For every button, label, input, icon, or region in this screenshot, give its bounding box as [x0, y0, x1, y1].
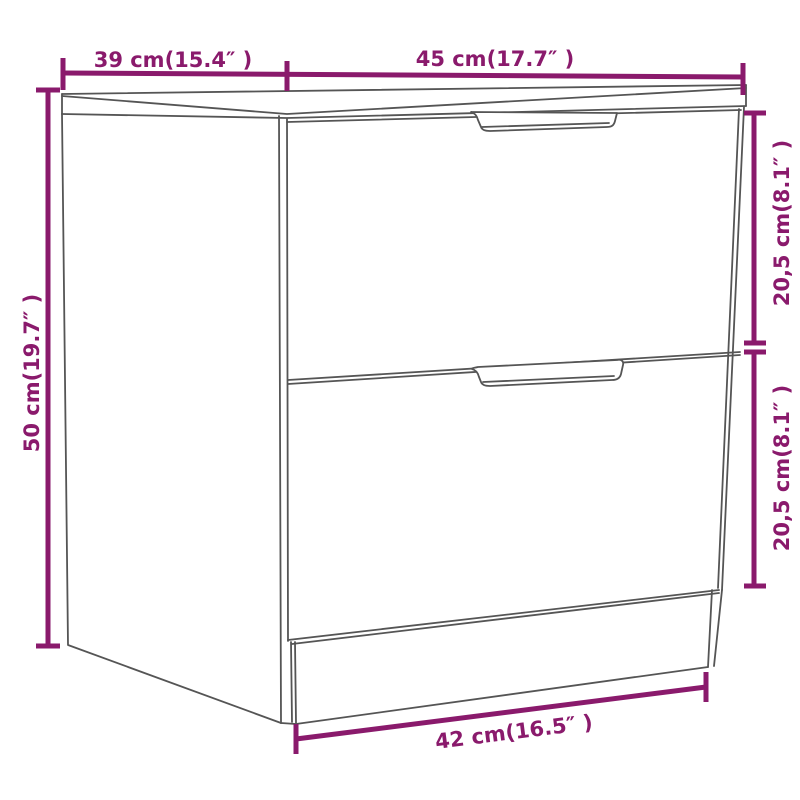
dimension-label-depth-top: 39 cm(15.4″ ) [94, 48, 253, 72]
side-panel [62, 114, 288, 723]
bottom-left-corner-connector [281, 723, 296, 724]
dimension-label-drawer-bottom-height: 20,5 cm(8.1″ ) [770, 385, 794, 552]
product-dimension-image: 39 cm(15.4″ ) 45 cm(17.7″ ) 50 cm(19.7″ … [0, 0, 800, 800]
cabinet-drawing [62, 85, 746, 724]
top-drawer-handle [471, 112, 617, 131]
dimension-label-drawer-top-height: 20,5 cm(8.1″ ) [770, 140, 794, 307]
plinth-left-edge-outer [291, 642, 292, 722]
front-left-outer-edge [279, 116, 281, 723]
front-right-outer-edge [722, 107, 744, 590]
diagram-canvas: 39 cm(15.4″ ) 45 cm(17.7″ ) 50 cm(19.7″ … [0, 0, 800, 800]
top-back-edge-line [62, 85, 746, 94]
front-right-inner-edge [718, 109, 739, 588]
plinth-left-edge-inner [295, 642, 296, 723]
drawer-bottom-line-upper [288, 590, 719, 640]
side-panel-outline [62, 114, 281, 723]
plinth-right-edge [708, 590, 712, 667]
dimension-line-right-upper [744, 113, 766, 343]
plinth-base [281, 590, 722, 724]
right-side-bottom-edge [714, 590, 722, 666]
drawer-handles [471, 112, 623, 386]
dimension-line-right-lower [744, 352, 766, 586]
dimension-label-width-top: 45 cm(17.7″ ) [416, 47, 575, 71]
dimension-lines [36, 58, 766, 754]
top-dimension-line [63, 73, 743, 77]
drawer-bottom-line-lower [292, 593, 719, 644]
dimension-labels: 39 cm(15.4″ ) 45 cm(17.7″ ) 50 cm(19.7″ … [20, 47, 794, 754]
dimension-label-height-left: 50 cm(19.7″ ) [20, 294, 44, 453]
